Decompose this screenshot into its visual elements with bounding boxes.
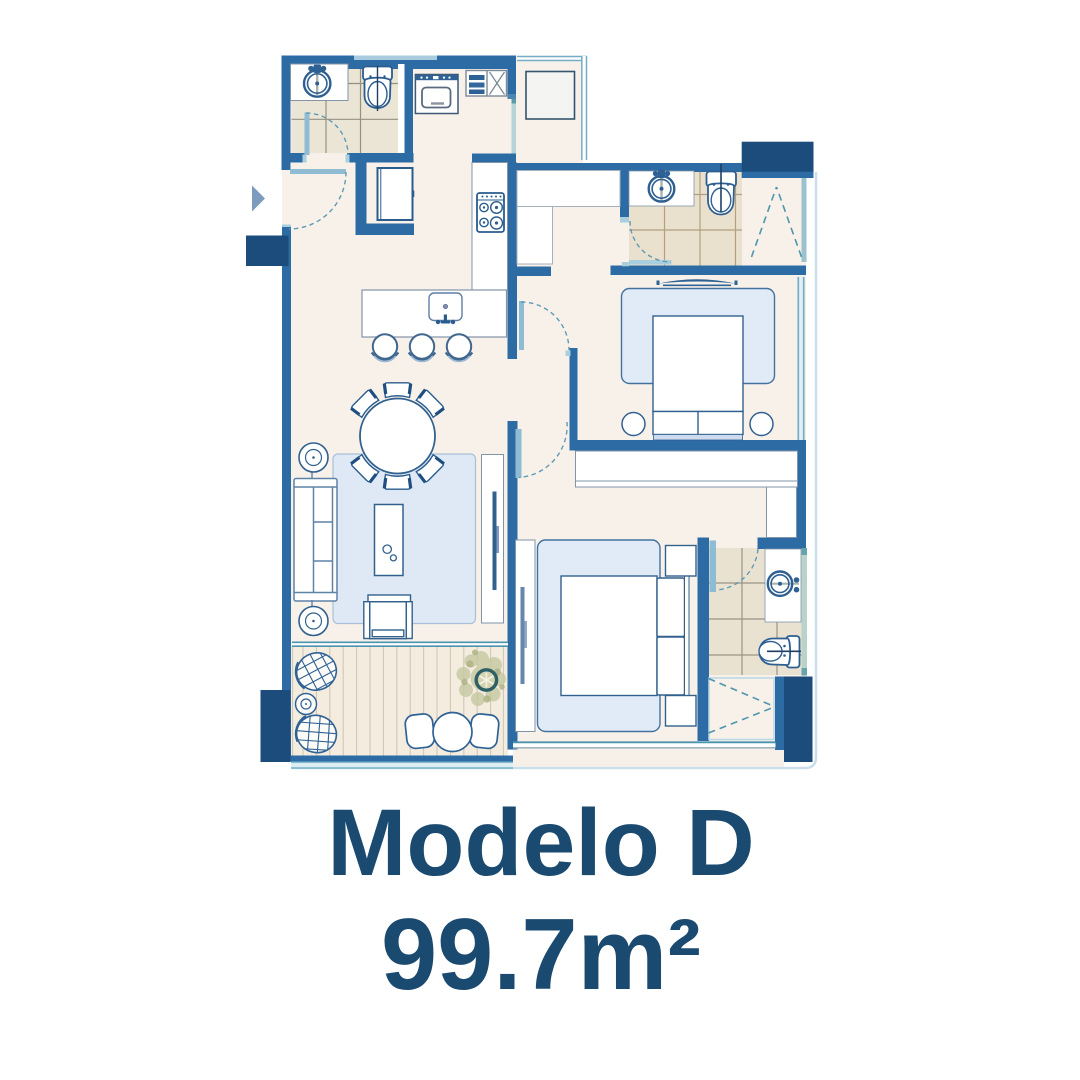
svg-text:99.7m²: 99.7m² [381, 899, 701, 1011]
svg-text:Modelo D: Modelo D [327, 790, 754, 896]
